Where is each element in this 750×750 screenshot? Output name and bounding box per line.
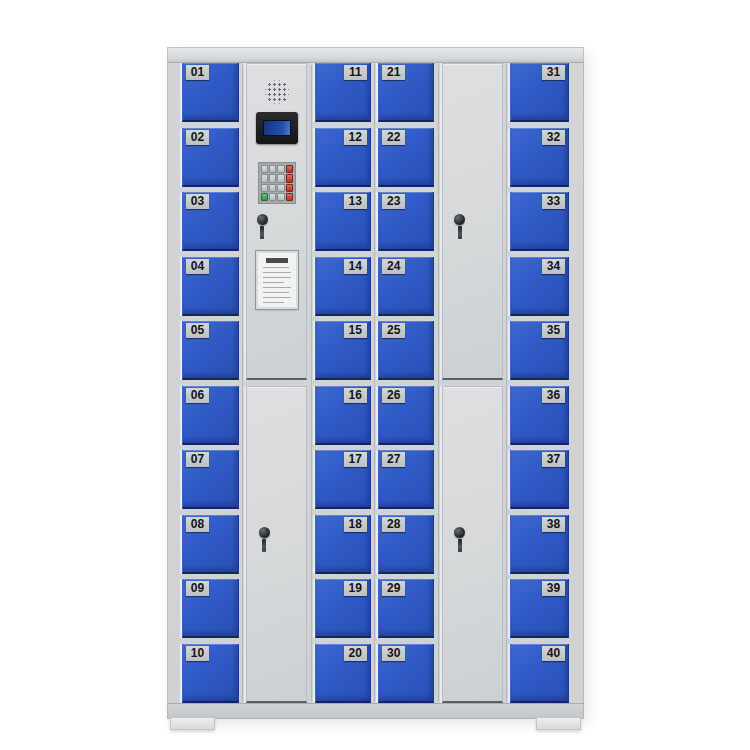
locker-door-34: 34 (510, 257, 569, 316)
lcd-display (256, 112, 298, 144)
instruction-card-title (266, 258, 288, 263)
service-door (442, 386, 503, 703)
door-number-plate: 36 (542, 388, 565, 403)
control-column (246, 63, 307, 703)
locker-door-20: 20 (315, 644, 371, 703)
door-number-plate: 28 (382, 517, 405, 532)
door-number-plate: 40 (542, 646, 565, 661)
inserted-key (260, 226, 264, 239)
keypad-key-red (286, 184, 293, 192)
door-number-plate: 13 (344, 194, 367, 209)
door-number-plate: 35 (542, 323, 565, 338)
locker-door-19: 19 (315, 579, 371, 638)
door-number-plate: 15 (344, 323, 367, 338)
door-number-plate: 11 (344, 65, 367, 80)
door-number-plate: 03 (186, 194, 209, 209)
smart-locker-cabinet: 01 02 03 04 05 06 07 08 09 10 (167, 47, 584, 719)
door-number-plate: 29 (382, 581, 405, 596)
locker-door-39: 39 (510, 579, 569, 638)
door-number-plate: 19 (344, 581, 367, 596)
locker-door-33: 33 (510, 192, 569, 251)
locker-door-05: 05 (182, 321, 239, 380)
locker-door-01: 01 (182, 63, 239, 122)
cabinet-base (167, 703, 584, 719)
locker-door-29: 29 (378, 579, 434, 638)
control-panel (246, 63, 307, 380)
locker-door-04: 04 (182, 257, 239, 316)
locker-door-28: 28 (378, 515, 434, 574)
keypad-key (277, 174, 284, 182)
door-number-plate: 27 (382, 452, 405, 467)
speaker-grille-icon (265, 80, 289, 104)
locker-door-06: 06 (182, 386, 239, 445)
keypad-key (277, 184, 284, 192)
locker-door-26: 26 (378, 386, 434, 445)
door-number-plate: 17 (344, 452, 367, 467)
locker-door-16: 16 (315, 386, 371, 445)
door-number-plate: 37 (542, 452, 565, 467)
instruction-card-text-line (263, 287, 291, 288)
locker-door-24: 24 (378, 257, 434, 316)
locker-door-31: 31 (510, 63, 569, 122)
door-number-plate: 23 (382, 194, 405, 209)
keypad-key (269, 165, 276, 173)
door-number-plate: 05 (186, 323, 209, 338)
door-number-plate: 26 (382, 388, 405, 403)
keypad-key-red (286, 193, 293, 201)
lock-knob (259, 527, 270, 538)
door-number-plate: 12 (344, 130, 367, 145)
locker-door-40: 40 (510, 644, 569, 703)
instruction-card-text-line (263, 272, 291, 273)
door-number-plate: 02 (186, 130, 209, 145)
door-number-plate: 39 (542, 581, 565, 596)
locker-door-09: 09 (182, 579, 239, 638)
door-number-plate: 10 (186, 646, 209, 661)
door-column-4: 21 22 23 24 25 26 27 28 29 30 (378, 63, 434, 703)
cabinet-top-panel (167, 47, 584, 63)
door-number-plate: 20 (344, 646, 367, 661)
numeric-keypad (258, 162, 296, 204)
door-number-plate: 32 (542, 130, 565, 145)
locker-door-15: 15 (315, 321, 371, 380)
door-number-plate: 04 (186, 259, 209, 274)
service-column (442, 63, 503, 703)
locker-door-13: 13 (315, 192, 371, 251)
instruction-card-text-line (263, 302, 284, 303)
door-number-plate: 18 (344, 517, 367, 532)
door-number-plate: 25 (382, 323, 405, 338)
lcd-screen (263, 120, 291, 136)
inserted-key (262, 539, 266, 552)
locker-door-37: 37 (510, 450, 569, 509)
locker-door-22: 22 (378, 128, 434, 187)
cabinet-foot-left (170, 717, 215, 730)
key-lock-icon (258, 527, 270, 552)
door-number-plate: 06 (186, 388, 209, 403)
inserted-key (458, 226, 462, 239)
keypad-key (261, 174, 268, 182)
locker-door-36: 36 (510, 386, 569, 445)
door-number-plate: 38 (542, 517, 565, 532)
locker-door-12: 12 (315, 128, 371, 187)
key-lock-icon (256, 214, 268, 239)
key-lock-icon (454, 214, 466, 239)
locker-door-14: 14 (315, 257, 371, 316)
door-number-plate: 01 (186, 65, 209, 80)
locker-door-23: 23 (378, 192, 434, 251)
locker-door-27: 27 (378, 450, 434, 509)
locker-door-25: 25 (378, 321, 434, 380)
lock-knob (454, 527, 465, 538)
door-column-1: 01 02 03 04 05 06 07 08 09 10 (182, 63, 239, 703)
locker-door-21: 21 (378, 63, 434, 122)
locker-door-30: 30 (378, 644, 434, 703)
door-number-plate: 24 (382, 259, 405, 274)
instruction-card-text-line (263, 292, 289, 293)
door-column-6: 31 32 33 34 35 36 37 38 39 40 (510, 63, 569, 703)
door-number-plate: 08 (186, 517, 209, 532)
instruction-card (256, 251, 298, 309)
instruction-card-text-line (263, 297, 291, 298)
instruction-card-text-line (263, 267, 289, 268)
keypad-key (261, 184, 268, 192)
service-door (442, 63, 503, 380)
locker-door-18: 18 (315, 515, 371, 574)
keypad-key (269, 184, 276, 192)
door-number-plate: 22 (382, 130, 405, 145)
locker-door-03: 03 (182, 192, 239, 251)
locker-door-11: 11 (315, 63, 371, 122)
keypad-key (269, 193, 276, 201)
cabinet-foot-right (536, 717, 581, 730)
door-column-3: 11 12 13 14 15 16 17 18 19 20 (315, 63, 371, 703)
locker-door-35: 35 (510, 321, 569, 380)
keypad-key-red (286, 165, 293, 173)
instruction-card-text-line (263, 282, 284, 283)
door-number-plate: 14 (344, 259, 367, 274)
keypad-key (277, 193, 284, 201)
locker-door-10: 10 (182, 644, 239, 703)
door-number-plate: 30 (382, 646, 405, 661)
door-number-plate: 09 (186, 581, 209, 596)
door-number-plate: 31 (542, 65, 565, 80)
keypad-key-green (261, 193, 268, 201)
keypad-key-red (286, 174, 293, 182)
keypad-key (269, 174, 276, 182)
locker-door-02: 02 (182, 128, 239, 187)
lock-knob (454, 214, 465, 225)
service-door (246, 386, 307, 703)
locker-door-07: 07 (182, 450, 239, 509)
locker-door-32: 32 (510, 128, 569, 187)
keypad-key (261, 165, 268, 173)
key-lock-icon (454, 527, 466, 552)
door-number-plate: 07 (186, 452, 209, 467)
door-number-plate: 16 (344, 388, 367, 403)
inserted-key (458, 539, 462, 552)
instruction-card-text-line (263, 277, 291, 278)
cabinet-body: 01 02 03 04 05 06 07 08 09 10 (167, 63, 584, 703)
locker-door-38: 38 (510, 515, 569, 574)
door-number-plate: 34 (542, 259, 565, 274)
locker-door-08: 08 (182, 515, 239, 574)
door-number-plate: 33 (542, 194, 565, 209)
product-photo-background: 01 02 03 04 05 06 07 08 09 10 (0, 0, 750, 750)
lock-knob (257, 214, 268, 225)
door-number-plate: 21 (382, 65, 405, 80)
keypad-key (277, 165, 284, 173)
locker-door-17: 17 (315, 450, 371, 509)
